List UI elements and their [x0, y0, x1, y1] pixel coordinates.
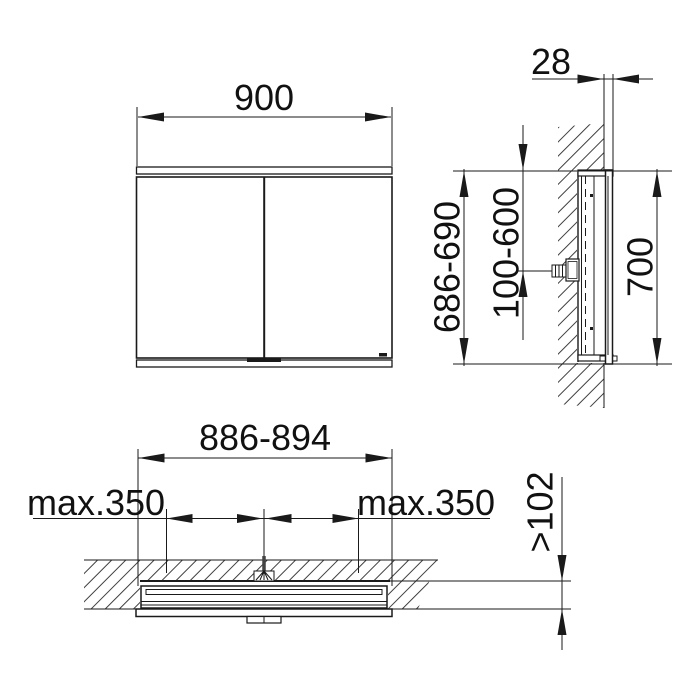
arrowhead-right-icon — [366, 454, 392, 463]
max-right-dim-label: max.350 — [357, 482, 495, 523]
hinge-dot-top — [590, 194, 593, 197]
arrowhead-down-icon — [519, 144, 528, 170]
arrowhead-right-icon — [333, 514, 359, 523]
depth-dim-label: 28 — [531, 41, 571, 82]
mirror-door-plan — [136, 609, 392, 617]
recess-depth-dim-label: >102 — [520, 471, 561, 552]
arrowhead-down-icon — [558, 555, 567, 581]
mirror-strip-plan — [146, 590, 382, 595]
arrowhead-up-icon — [653, 171, 662, 197]
recess-height-dim-label: 686-690 — [427, 201, 468, 333]
technical-drawing-page: 900 28 — [0, 0, 700, 700]
connection-range-dim-label: 100-600 — [486, 187, 527, 319]
arrowhead-left-icon — [139, 454, 165, 463]
plan-view: 886-894 max.350 max.350 >102 — [27, 417, 571, 650]
max-left-dim-label: max.350 — [27, 482, 165, 523]
recess-width-dim-label: 886-894 — [199, 417, 331, 458]
arrowhead-up-icon — [460, 171, 469, 197]
arrowhead-left-icon — [138, 113, 164, 122]
cabinet-height-dim-label: 700 — [620, 237, 661, 297]
arrowhead-right-icon — [365, 113, 391, 122]
arrowhead-down-icon — [460, 338, 469, 364]
arrowhead-down-icon — [653, 338, 662, 364]
mirror-door-section — [606, 170, 613, 364]
hinge-dot-bottom — [590, 327, 593, 330]
arrowhead-left-icon — [613, 75, 639, 84]
front-view: 900 — [137, 77, 393, 367]
arrowhead-right-icon — [237, 514, 263, 523]
technical-drawing: 900 28 — [0, 0, 700, 700]
arrowhead-left-icon — [266, 514, 292, 523]
connection-box-inner — [568, 262, 577, 279]
arrowhead-up-icon — [558, 609, 567, 635]
front-switch-bar — [247, 358, 281, 363]
arrowhead-left-icon — [167, 514, 193, 523]
front-light-strip — [137, 167, 393, 174]
brand-logo-mark — [379, 353, 387, 357]
front-width-dim-label: 900 — [234, 77, 294, 118]
side-view: 28 686-690 100-600 — [427, 41, 673, 408]
arrowhead-right-icon — [578, 75, 604, 84]
